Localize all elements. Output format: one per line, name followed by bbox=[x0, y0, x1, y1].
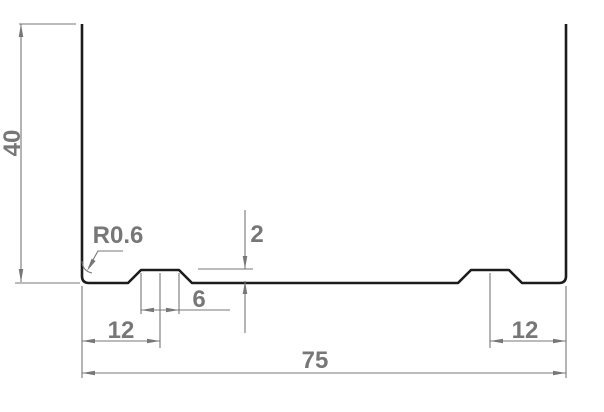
groove-depth-label: 2 bbox=[250, 221, 263, 248]
arrowhead-leader-icon bbox=[87, 259, 96, 271]
arrowhead-up-icon bbox=[19, 24, 24, 37]
arrowhead-right-icon bbox=[553, 371, 566, 376]
height-dimension-label: 40 bbox=[0, 130, 26, 157]
channel-profile-drawing: 40 R0.6 6 2 bbox=[0, 0, 604, 412]
overall-width-label: 75 bbox=[302, 347, 329, 374]
arrowhead-down-icon bbox=[243, 256, 248, 269]
dimension-right-groove-offset: 12 bbox=[490, 273, 566, 378]
arrowhead-left-icon bbox=[141, 308, 154, 313]
arrowhead-right-icon bbox=[147, 339, 160, 344]
arrowhead-right-icon bbox=[166, 308, 179, 313]
arrowhead-down-icon bbox=[19, 269, 24, 282]
arrowhead-left-icon bbox=[82, 339, 95, 344]
dimension-overall-width: 75 bbox=[82, 347, 566, 375]
dimension-corner-radius: R0.6 bbox=[82, 222, 143, 273]
arrowhead-left-icon bbox=[82, 371, 95, 376]
dimension-left-groove-offset: 12 bbox=[82, 286, 160, 378]
dimension-groove-depth: 2 bbox=[198, 210, 264, 333]
corner-radius-label: R0.6 bbox=[93, 222, 144, 249]
arrowhead-right-icon bbox=[553, 339, 566, 344]
radius-leader-line bbox=[89, 251, 123, 267]
technical-drawing-canvas: 40 R0.6 6 2 bbox=[0, 0, 604, 412]
dimension-height: 40 bbox=[0, 24, 80, 283]
right-groove-offset-label: 12 bbox=[512, 317, 539, 344]
channel-profile-outline bbox=[82, 24, 566, 283]
arrowhead-left-icon bbox=[490, 339, 503, 344]
groove-width-label: 6 bbox=[192, 286, 205, 313]
left-groove-offset-label: 12 bbox=[108, 317, 135, 344]
